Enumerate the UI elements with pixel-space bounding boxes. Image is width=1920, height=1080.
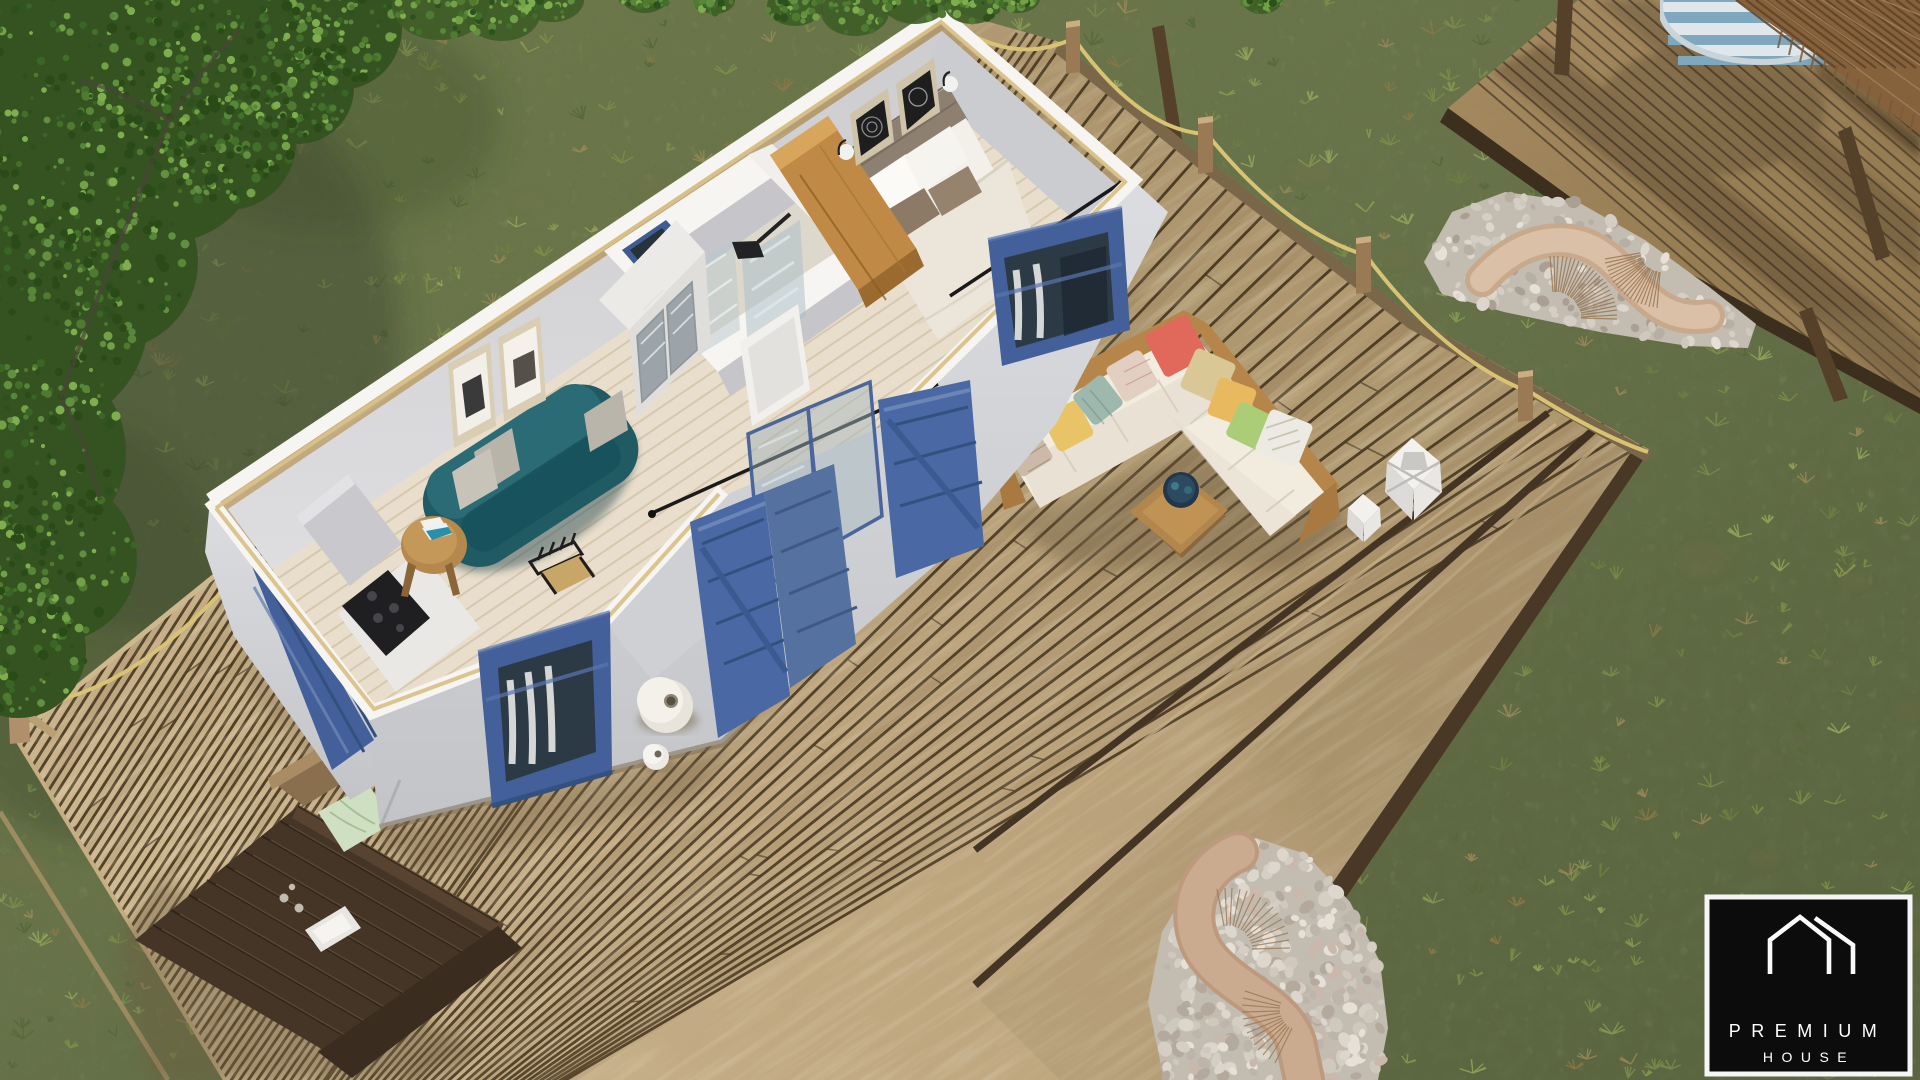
svg-text:PREMIUM: PREMIUM <box>1729 1021 1888 1041</box>
svg-text:HOUSE: HOUSE <box>1763 1049 1855 1065</box>
